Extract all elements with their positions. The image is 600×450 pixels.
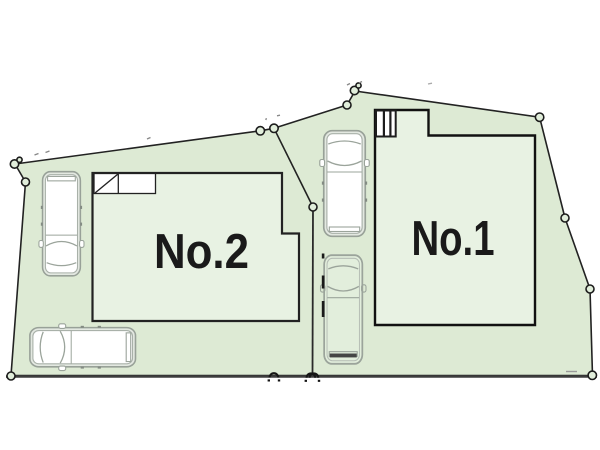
svg-text:No.2: No.2 <box>154 224 249 279</box>
svg-text:No.1: No.1 <box>412 211 495 266</box>
